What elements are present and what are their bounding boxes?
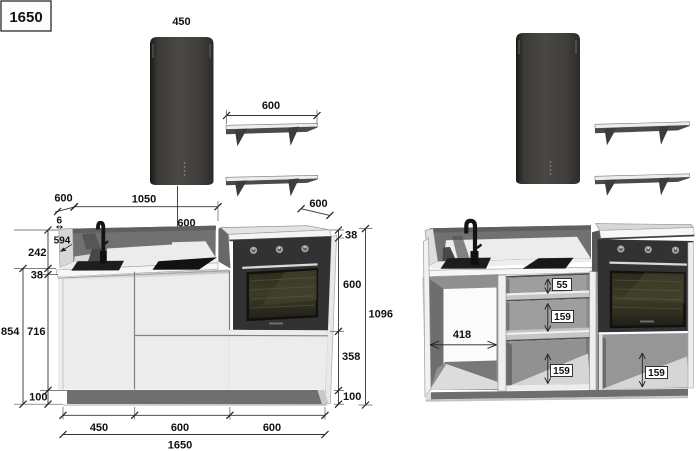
svg-text:159: 159: [553, 366, 570, 377]
svg-text:55: 55: [556, 280, 568, 291]
svg-text:358: 358: [342, 351, 360, 363]
svg-text:600: 600: [262, 100, 280, 112]
svg-text:159: 159: [648, 368, 665, 379]
svg-text:418: 418: [453, 329, 471, 341]
svg-text:854: 854: [1, 326, 20, 338]
svg-text:600: 600: [263, 422, 281, 434]
svg-text:38: 38: [345, 229, 357, 241]
svg-text:600: 600: [171, 422, 189, 434]
svg-text:450: 450: [172, 16, 190, 28]
svg-text:242: 242: [28, 247, 46, 259]
svg-text:1650: 1650: [9, 9, 42, 26]
svg-text:38: 38: [31, 270, 43, 282]
svg-text:100: 100: [29, 392, 47, 404]
svg-text:716: 716: [27, 326, 45, 338]
svg-text:594: 594: [54, 236, 71, 247]
svg-text:450: 450: [90, 422, 108, 434]
svg-text:1096: 1096: [369, 309, 393, 321]
svg-text:6: 6: [57, 216, 63, 227]
svg-text:600: 600: [343, 279, 361, 291]
svg-text:600: 600: [54, 193, 72, 205]
svg-text:100: 100: [343, 391, 361, 403]
svg-text:600: 600: [309, 198, 327, 210]
svg-text:1050: 1050: [132, 194, 156, 206]
svg-text:159: 159: [554, 312, 571, 323]
svg-text:1650: 1650: [168, 440, 192, 451]
